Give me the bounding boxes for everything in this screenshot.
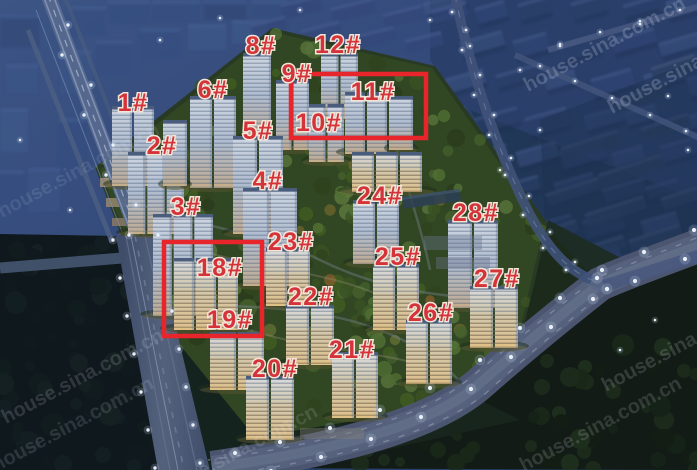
svg-text:12#: 12#	[315, 31, 361, 59]
svg-text:25#: 25#	[375, 243, 421, 271]
svg-text:18#: 18#	[197, 254, 243, 282]
svg-text:8#: 8#	[246, 32, 277, 60]
svg-text:11#: 11#	[351, 78, 396, 106]
svg-text:28#: 28#	[453, 199, 499, 227]
svg-text:24#: 24#	[357, 182, 403, 210]
svg-text:6#: 6#	[198, 76, 229, 104]
svg-text:9#: 9#	[282, 60, 313, 88]
svg-text:19#: 19#	[207, 306, 253, 334]
svg-text:1#: 1#	[118, 89, 149, 117]
svg-text:27#: 27#	[474, 265, 520, 293]
svg-text:23#: 23#	[268, 228, 314, 256]
svg-text:4#: 4#	[253, 167, 284, 195]
svg-text:3#: 3#	[171, 193, 202, 221]
svg-text:5#: 5#	[243, 117, 274, 145]
svg-text:10#: 10#	[296, 109, 342, 137]
svg-text:26#: 26#	[408, 299, 454, 327]
svg-text:20#: 20#	[252, 355, 298, 383]
svg-text:22#: 22#	[288, 283, 334, 311]
svg-text:21#: 21#	[329, 336, 375, 364]
